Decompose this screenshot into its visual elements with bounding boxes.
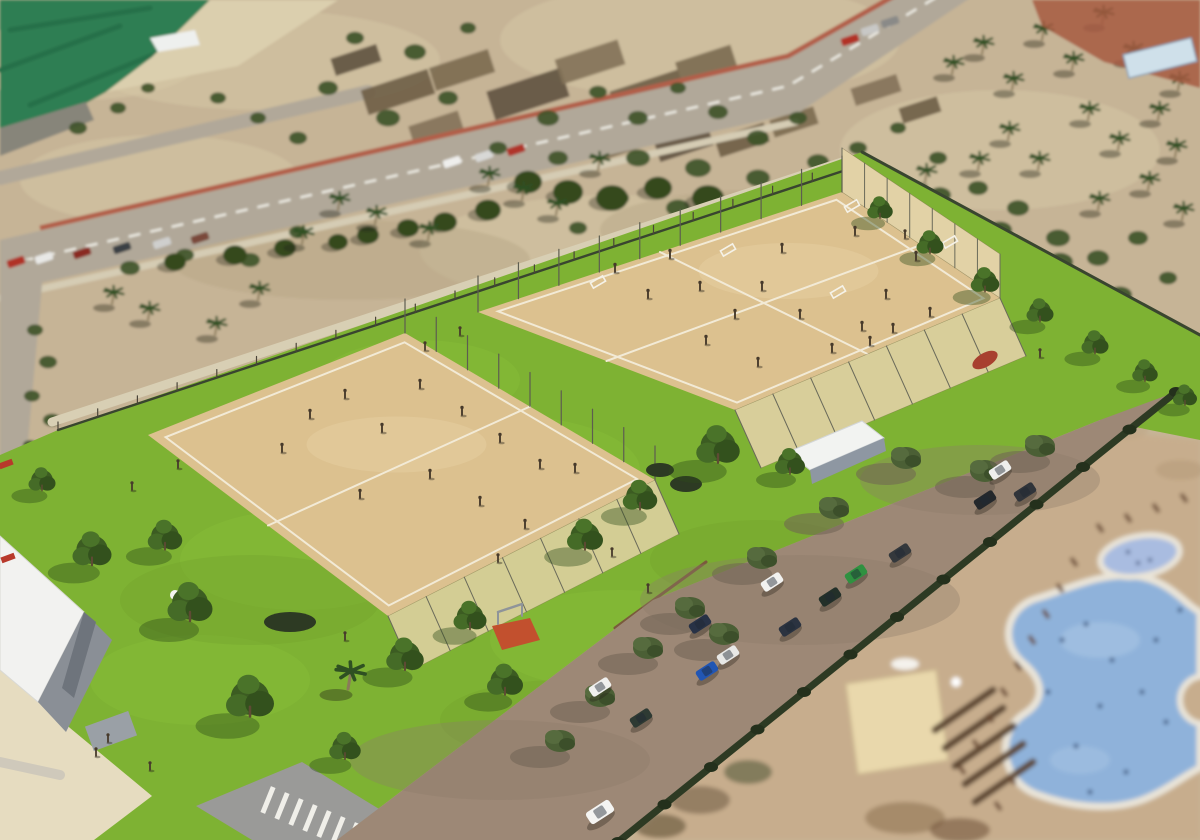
tree-canopy-top (706, 425, 726, 442)
tree-canopy-dark (723, 631, 739, 643)
person-head (914, 251, 917, 254)
tree-canopy-top (82, 531, 100, 547)
palm-shadow (1139, 120, 1161, 128)
scrub-bush (210, 92, 226, 103)
scrub-bush (670, 82, 686, 93)
person-head (148, 761, 151, 764)
palm-shadow (1156, 157, 1178, 165)
person-head (903, 229, 906, 232)
scrub-bush (589, 86, 607, 99)
palm-crown (258, 286, 262, 290)
palm-shadow (1129, 190, 1151, 198)
tree-canopy-top (1088, 330, 1101, 341)
tree-canopy-top (923, 230, 936, 241)
person-head (646, 583, 649, 586)
person-head (760, 281, 763, 284)
palm-shadow (1019, 170, 1041, 178)
scrub-bush (1159, 272, 1177, 285)
hedge-bush (1076, 462, 1090, 472)
person-head (613, 263, 616, 266)
person-head (478, 496, 481, 499)
scrub-bush (789, 112, 807, 125)
person-head (523, 519, 526, 522)
scrub-bush (438, 91, 458, 105)
palm-crown (428, 226, 432, 230)
person-head (94, 747, 97, 750)
tree-canopy-top (1179, 384, 1190, 394)
scrub-bush (141, 83, 155, 93)
person-head (704, 335, 707, 338)
person-head (668, 249, 671, 252)
swimmer-dot (1164, 720, 1169, 725)
sand-highlight (307, 417, 487, 473)
palm-shadow (579, 170, 601, 178)
person-head (106, 733, 109, 736)
palm-crown (1175, 143, 1179, 147)
person-head (756, 357, 759, 360)
person-head (423, 341, 426, 344)
palm-shadow (1069, 120, 1091, 128)
palm-crown (1098, 196, 1102, 200)
person-head (538, 459, 541, 462)
palm-shadow (1053, 70, 1075, 78)
roadside-tree (223, 245, 247, 264)
person-head (176, 459, 179, 462)
hedge-bush (844, 650, 858, 660)
scrub-bush (968, 181, 988, 195)
scrub-bush (685, 159, 711, 177)
tree-canopy-dark (833, 505, 849, 517)
pavement-shade (350, 720, 650, 800)
tree-canopy-dark (559, 738, 575, 750)
scrub-bush (39, 356, 57, 369)
lawn-mottle (90, 635, 310, 725)
swimmer-dot (1148, 558, 1152, 562)
hedge-bush (937, 575, 951, 585)
hedge-bush (890, 612, 904, 622)
person-head (380, 423, 383, 426)
hedge-bush (1123, 425, 1137, 435)
person-head (646, 289, 649, 292)
palm-crown (148, 306, 152, 310)
person-head (573, 463, 576, 466)
palm-crown (1088, 106, 1092, 110)
person-head (343, 389, 346, 392)
scrub-bush (569, 222, 587, 235)
palm-crown (598, 156, 602, 160)
pool-shallow (1050, 746, 1110, 774)
scrub-bush (110, 102, 126, 113)
scrub-bush (708, 105, 728, 119)
palm-shadow (1099, 150, 1121, 158)
swimmer-dot (1124, 770, 1129, 775)
swimmer-dot (1110, 658, 1115, 663)
swimmer-dot (1046, 690, 1051, 695)
building-white-detail (891, 658, 919, 670)
person-head (280, 443, 283, 446)
hedge-bush (751, 725, 765, 735)
hedge-bush (983, 537, 997, 547)
person-head (798, 309, 801, 312)
palm-shadow (1163, 220, 1185, 228)
palm-shadow (959, 170, 981, 178)
scrub-bush (1007, 200, 1029, 215)
palm-crown (1158, 106, 1162, 110)
tree-canopy-top (337, 732, 352, 745)
palm-shadow (469, 185, 491, 193)
scrub-bush (1128, 231, 1148, 245)
palm-shadow (320, 689, 353, 701)
person-head (418, 379, 421, 382)
person-head (860, 321, 863, 324)
tree-canopy-top (395, 638, 413, 653)
swimmer-dot (1084, 622, 1089, 627)
tree-canopy-top (1138, 359, 1150, 369)
tree-canopy-top (782, 448, 796, 460)
sports-complex-aerial-scene (0, 0, 1200, 840)
scrub-bush (460, 22, 476, 33)
palm-shadow (196, 335, 218, 343)
swimmer-dot (1074, 744, 1079, 749)
palm-crown (556, 201, 560, 205)
palm-crown (375, 210, 379, 214)
palm-crown (1012, 76, 1016, 80)
palm-shadow (239, 300, 261, 308)
tree-canopy-top (873, 196, 885, 206)
tree-canopy-dark (905, 455, 921, 467)
palm-shadow (319, 210, 341, 218)
swimmer-dot (1126, 550, 1130, 554)
scrub-bush (404, 44, 426, 59)
palm-shadow (1159, 90, 1181, 98)
hedge-block (264, 612, 316, 632)
tree-canopy-dark (647, 645, 663, 657)
scrub-bush (747, 130, 769, 145)
tree-canopy-top (35, 467, 48, 478)
palm-shadow (537, 215, 559, 223)
roadside-tree (644, 177, 672, 199)
person-head (428, 469, 431, 472)
person-head (891, 323, 894, 326)
scrub-bush (628, 111, 648, 125)
person-head (1038, 348, 1041, 351)
scrub-bush (537, 110, 559, 125)
scrub-bush (27, 324, 43, 335)
scrub-bush (929, 152, 947, 165)
palm-shadow (356, 224, 378, 232)
roadside-tree (328, 234, 348, 250)
tree-canopy-top (495, 664, 512, 678)
tree-canopy-dark (1039, 443, 1055, 455)
swimmer-dot (1088, 790, 1093, 795)
palm-shadow (963, 54, 985, 62)
palm-crown (925, 168, 929, 172)
palm-shadow (993, 90, 1015, 98)
person-head (343, 631, 346, 634)
aerial-render-view (0, 0, 1200, 840)
scrub-bush (626, 150, 650, 167)
deck-texture-blob (724, 760, 772, 784)
palm-shadow (1023, 40, 1045, 48)
palm-crown (952, 60, 956, 64)
person-head (853, 226, 856, 229)
palm-crown (1008, 126, 1012, 130)
palm-shadow (409, 240, 431, 248)
palm-crown (982, 40, 986, 44)
roadside-tree (397, 219, 419, 237)
palm-shadow (129, 320, 151, 328)
palm-shadow (933, 74, 955, 82)
palm-shadow (1079, 210, 1101, 218)
swimmer-dot (1060, 638, 1065, 643)
person-head (733, 309, 736, 312)
scrub-bush (24, 390, 40, 401)
pool-peninsula (1180, 676, 1200, 724)
palm-shadow (283, 244, 305, 252)
scrub-bush (69, 122, 87, 135)
tree-canopy-top (631, 480, 647, 494)
tree-canopy-top (461, 601, 476, 614)
scrub-bush (489, 142, 507, 155)
palm-crown (348, 668, 355, 675)
person-head (358, 489, 361, 492)
person-head (458, 326, 461, 329)
palm-crown (1182, 206, 1186, 210)
palm-shadow (503, 200, 525, 208)
tree-canopy-dark (689, 605, 705, 617)
palm-crown (338, 196, 342, 200)
scrub-bush (1046, 230, 1070, 247)
scrub-bush (548, 151, 568, 165)
tree-canopy-top (237, 675, 259, 694)
person-head (830, 343, 833, 346)
palm-crown (1118, 136, 1122, 140)
roadside-tree (164, 253, 186, 271)
swimmer-dot (1140, 690, 1145, 695)
person-head (780, 243, 783, 246)
palm-crown (1038, 156, 1042, 160)
hedge-bush (704, 762, 718, 772)
scrub-bush (318, 81, 338, 95)
tree-canopy-dark (761, 555, 777, 567)
person-head (498, 433, 501, 436)
palm-crown (1148, 176, 1152, 180)
person-head (610, 547, 613, 550)
tree-canopy-top (1033, 298, 1046, 309)
tree-canopy-top (977, 267, 990, 278)
palm-crown (112, 290, 116, 294)
roadside-tree (475, 200, 501, 221)
palm-crown (1072, 56, 1076, 60)
person-head (868, 336, 871, 339)
hedge-bush (797, 687, 811, 697)
hedge-bush (1030, 500, 1044, 510)
pool-building-roof (846, 670, 948, 774)
roadside-tree (596, 185, 628, 211)
scrub-bush (1087, 250, 1109, 265)
palm-crown (488, 171, 492, 175)
person-head (698, 281, 701, 284)
palm-crown (522, 186, 526, 190)
scrub-bush (346, 32, 364, 45)
white-umbrella (951, 677, 961, 687)
scrub-bush (890, 122, 906, 133)
swimmer-dot (1178, 608, 1183, 613)
pool-shallow (1060, 622, 1140, 658)
tree-canopy-top (156, 520, 172, 534)
palm-shadow (989, 140, 1011, 148)
palm-crown (215, 321, 219, 325)
scrub-bush (250, 112, 266, 123)
tree-canopy-top (575, 519, 592, 533)
palm-shadow (93, 304, 115, 312)
person-head (496, 553, 499, 556)
person-head (308, 409, 311, 412)
scrub-bush (120, 261, 140, 275)
person-head (884, 289, 887, 292)
swimmer-dot (1136, 561, 1140, 565)
swimmer-dot (1098, 704, 1103, 709)
person-head (460, 406, 463, 409)
hedge-bush (658, 800, 672, 810)
tree-canopy-top (178, 582, 199, 600)
scrub-bush (376, 110, 400, 127)
palm-crown (302, 230, 306, 234)
person-head (928, 307, 931, 310)
scrub-bush (289, 132, 307, 145)
person-head (130, 481, 133, 484)
swimmer-dot (1154, 638, 1159, 643)
palm-crown (978, 156, 982, 160)
